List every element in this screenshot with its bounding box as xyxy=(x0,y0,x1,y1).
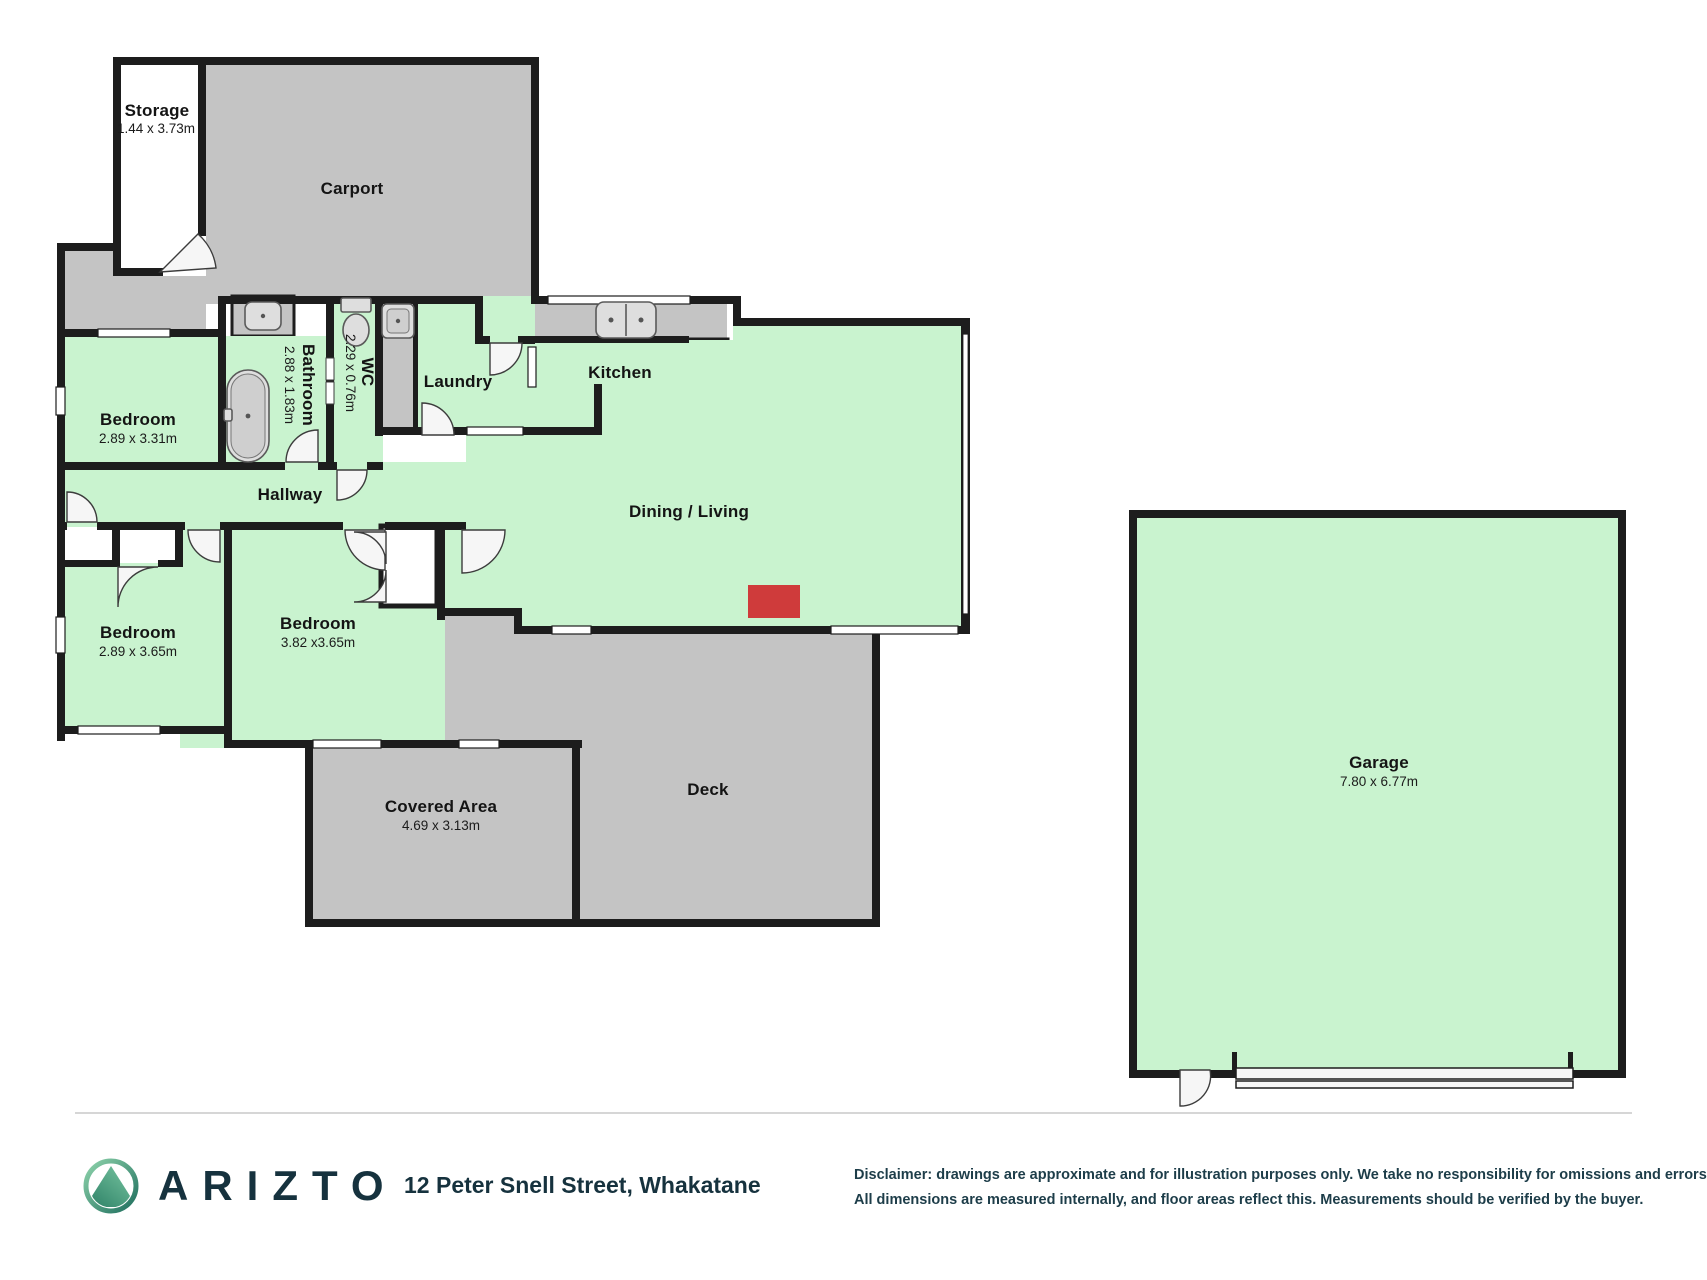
disclaimer-line-2: All dimensions are measured internally, … xyxy=(854,1192,1643,1208)
window xyxy=(528,347,536,387)
room-label-carport: Carport xyxy=(321,179,384,198)
room-label-bathroom: Bathroom xyxy=(299,344,318,426)
room-kitchen xyxy=(531,340,737,435)
bathtub-tap-icon xyxy=(224,409,232,421)
room-garage xyxy=(1133,514,1622,1074)
room-dims-storage: 1.44 x 3.73m xyxy=(117,121,195,136)
room-label-garage: Garage xyxy=(1349,753,1409,772)
pocket-door xyxy=(326,358,334,380)
closet-left xyxy=(62,527,112,563)
room-label-hallway: Hallway xyxy=(258,485,323,504)
window xyxy=(552,626,591,634)
room-label-dining: Dining / Living xyxy=(629,502,749,521)
disclaimer-line-1: Disclaimer: drawings are approximate and… xyxy=(854,1167,1707,1183)
window xyxy=(963,334,968,614)
room-label-bedroom2: Bedroom xyxy=(100,623,176,642)
room-dims-wc: 2.29 x 0.76m xyxy=(343,334,358,412)
window xyxy=(313,740,381,748)
window xyxy=(56,387,65,415)
room-label-storage: Storage xyxy=(125,101,190,120)
room-bedroom1 xyxy=(57,329,226,470)
room-label-bedroom1: Bedroom xyxy=(100,410,176,429)
fireplace-symbol xyxy=(748,585,800,618)
garage-door xyxy=(1236,1068,1573,1079)
window xyxy=(56,617,65,653)
window xyxy=(98,329,170,337)
brand-name: ARIZTO xyxy=(158,1162,398,1209)
room-label-laundry: Laundry xyxy=(424,372,493,391)
room-label-deck: Deck xyxy=(687,780,729,799)
room-dims-bedroom3: 3.82 x3.65m xyxy=(281,635,355,650)
closet-right xyxy=(120,527,175,563)
property-address: 12 Peter Snell Street, Whakatane xyxy=(404,1172,761,1198)
window xyxy=(831,626,958,634)
room-label-bedroom3: Bedroom xyxy=(280,614,356,633)
floorplan-page: Storage 1.44 x 3.73m Carport Bedroom 2.8… xyxy=(0,0,1707,1280)
room-dims-covered: 4.69 x 3.13m xyxy=(402,818,480,833)
pocket-door xyxy=(326,382,334,404)
floorplan-svg: Storage 1.44 x 3.73m Carport Bedroom 2.8… xyxy=(0,0,1707,1280)
room-dims-garage: 7.80 x 6.77m xyxy=(1340,774,1418,789)
room-dims-bathroom: 2.88 x 1.83m xyxy=(282,346,297,424)
room-dims-bedroom2: 2.89 x 3.65m xyxy=(99,644,177,659)
room-label-wc: WC xyxy=(358,358,377,387)
window xyxy=(467,427,523,435)
room-dims-bedroom1: 2.89 x 3.31m xyxy=(99,431,177,446)
window xyxy=(78,726,160,734)
garage-door xyxy=(1236,1081,1573,1088)
room-label-kitchen: Kitchen xyxy=(588,363,652,382)
door-arc-garage xyxy=(1180,1070,1211,1106)
closet-bedroom3 xyxy=(381,526,437,606)
covered-area xyxy=(309,744,576,923)
window xyxy=(459,740,499,748)
toilet-tank-icon xyxy=(341,298,371,312)
arizto-logo xyxy=(85,1161,137,1211)
room-label-covered: Covered Area xyxy=(385,797,498,816)
